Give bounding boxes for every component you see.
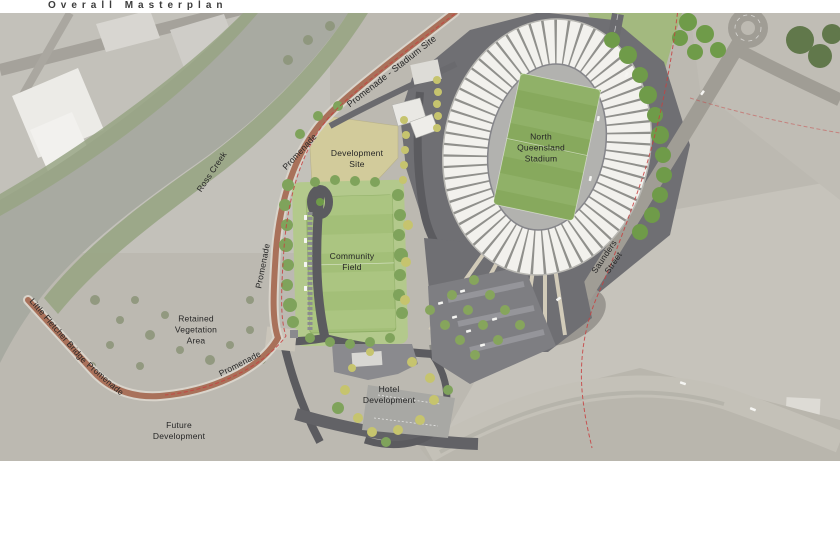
masterplan-map: Promenade - Stadium Site Promenade Devel…: [0, 0, 840, 461]
label-future-development: Future Development: [153, 420, 205, 442]
masterplan-page: Overall Masterplan: [0, 0, 840, 538]
masterplan-drawing: [0, 0, 840, 461]
label-community-field: Community Field: [330, 251, 375, 273]
label-hotel-development: Hotel Development: [363, 384, 415, 406]
label-development-site: Development Site: [331, 148, 383, 170]
label-north-queensland-stadium: North Queensland Stadium: [517, 131, 565, 164]
footer: rps MAKING COMPLEX EASY rpsgroup.com.au: [0, 461, 840, 538]
label-retained-vegetation-area: Retained Vegetation Area: [175, 313, 217, 346]
